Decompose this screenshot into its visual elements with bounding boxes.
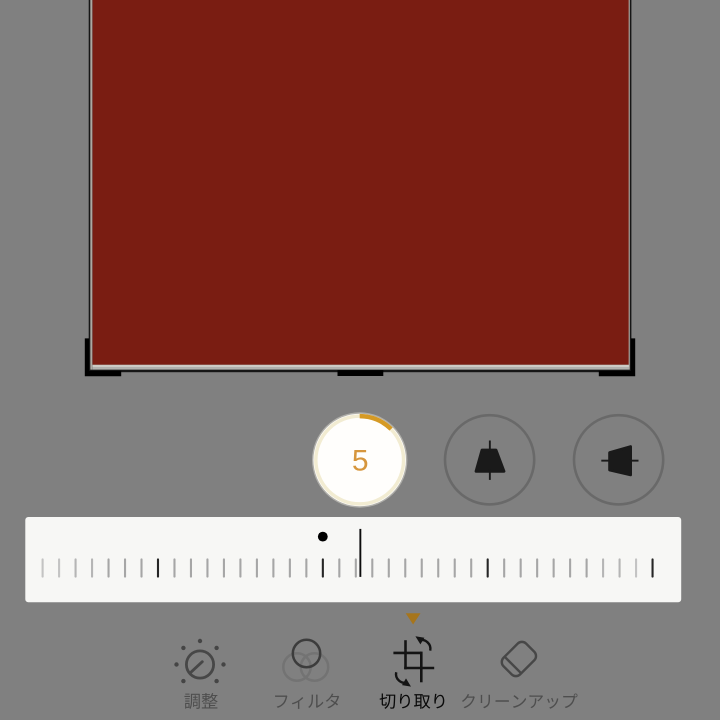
svg-text:5: 5 bbox=[352, 445, 369, 478]
